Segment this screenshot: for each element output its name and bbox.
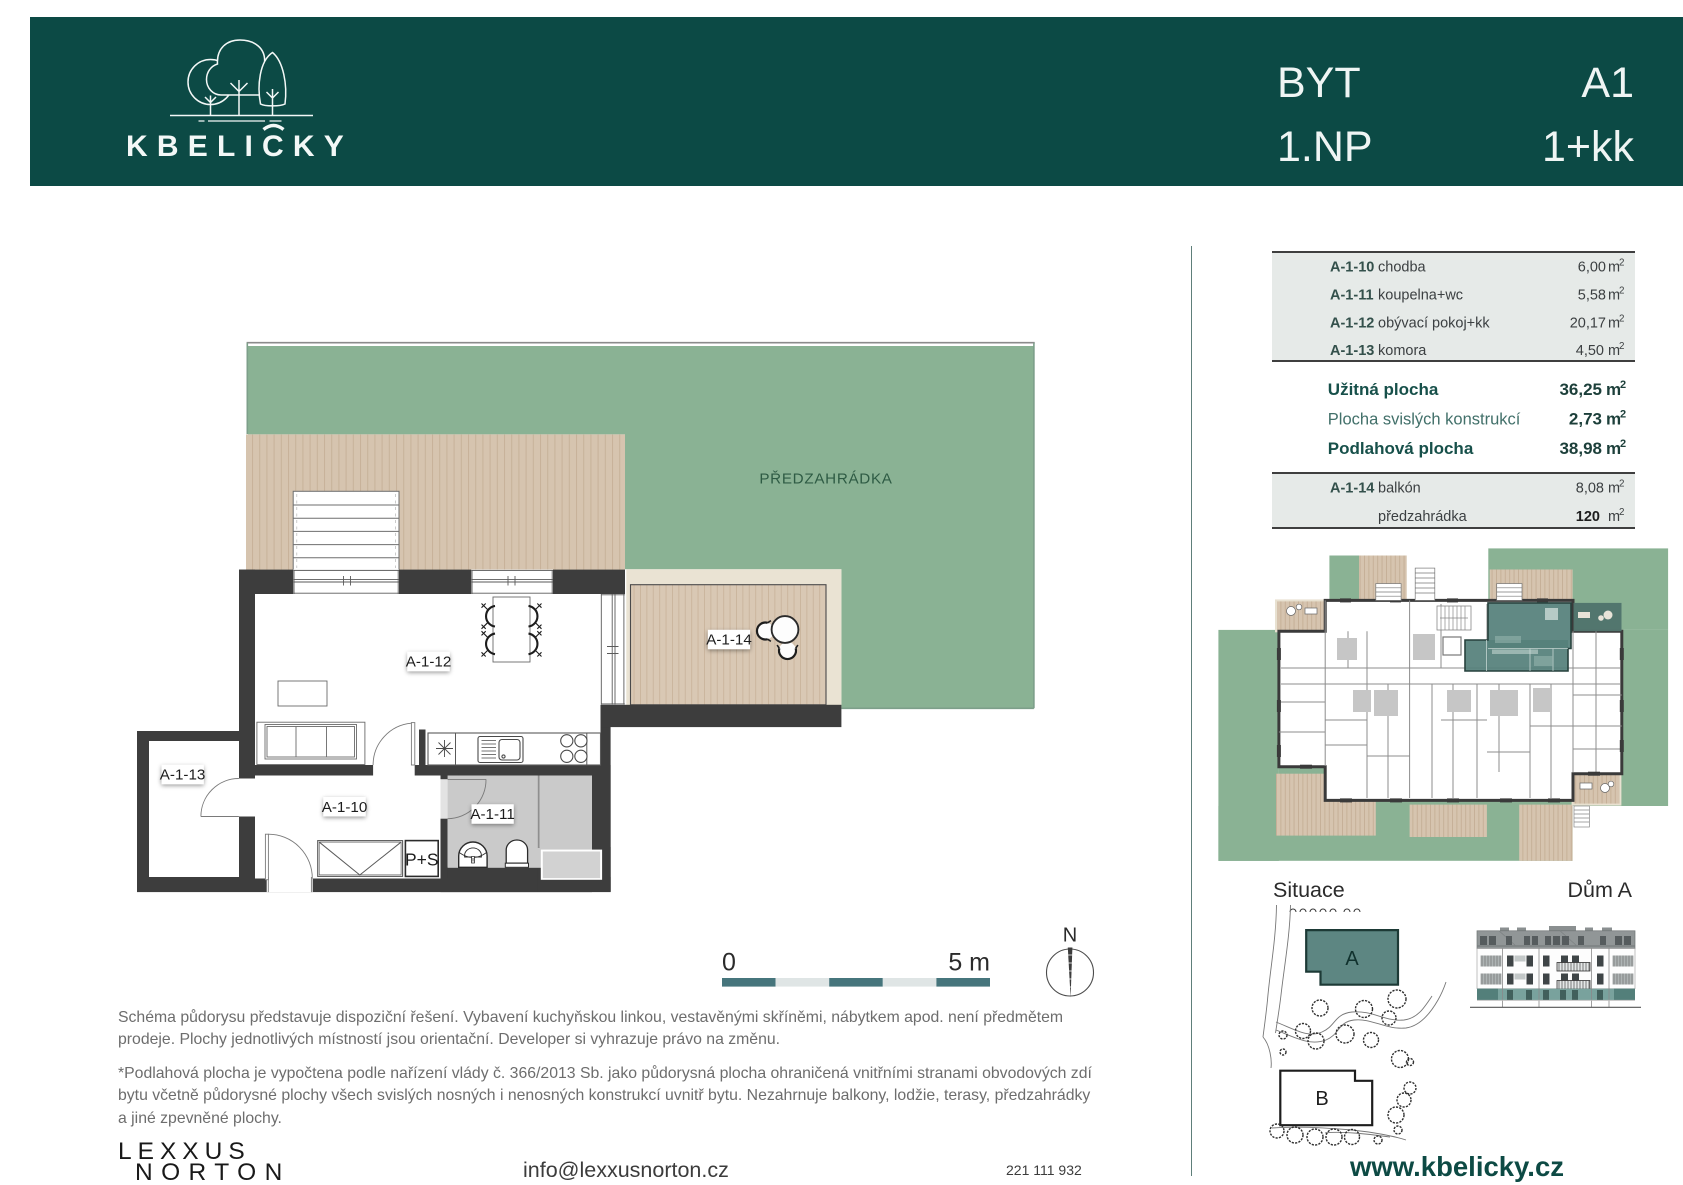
svg-text:A: A xyxy=(1345,948,1359,970)
svg-text:Dům A: Dům A xyxy=(1567,878,1632,902)
svg-text:B: B xyxy=(1315,1088,1328,1110)
svg-text:Situace: Situace xyxy=(1273,878,1345,902)
